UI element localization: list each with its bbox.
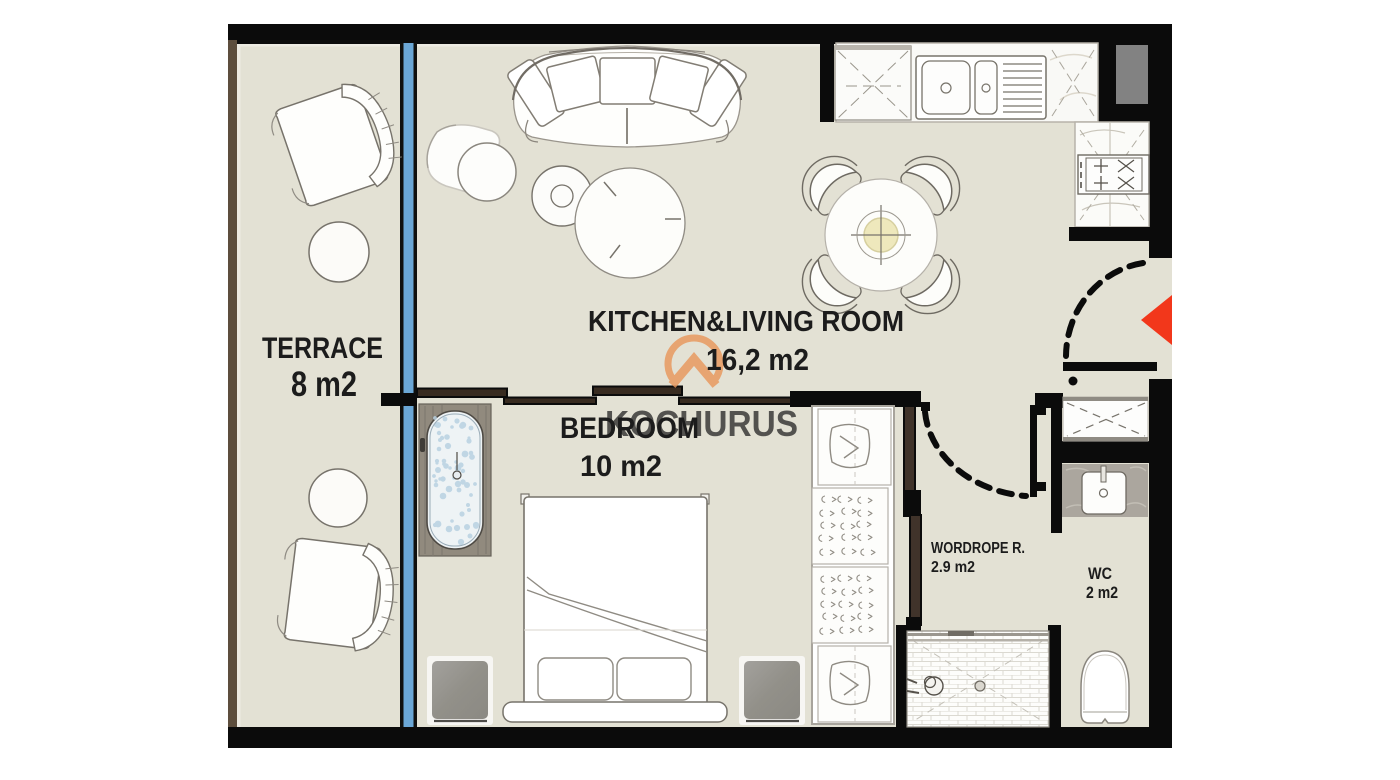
svg-text:2 m2: 2 m2: [1086, 584, 1118, 602]
svg-text:2.9 m2: 2.9 m2: [931, 559, 975, 576]
svg-text:WC: WC: [1088, 565, 1112, 583]
svg-text:KITCHEN&LIVING ROOM: KITCHEN&LIVING ROOM: [588, 306, 904, 338]
svg-text:BEDROOM: BEDROOM: [560, 412, 699, 445]
svg-text:16,2 m2: 16,2 m2: [706, 342, 809, 377]
svg-text:8 m2: 8 m2: [291, 365, 357, 404]
svg-text:WORDROPE R.: WORDROPE R.: [931, 540, 1025, 557]
svg-text:TERRACE: TERRACE: [262, 332, 383, 365]
svg-text:10 m2: 10 m2: [580, 450, 662, 483]
